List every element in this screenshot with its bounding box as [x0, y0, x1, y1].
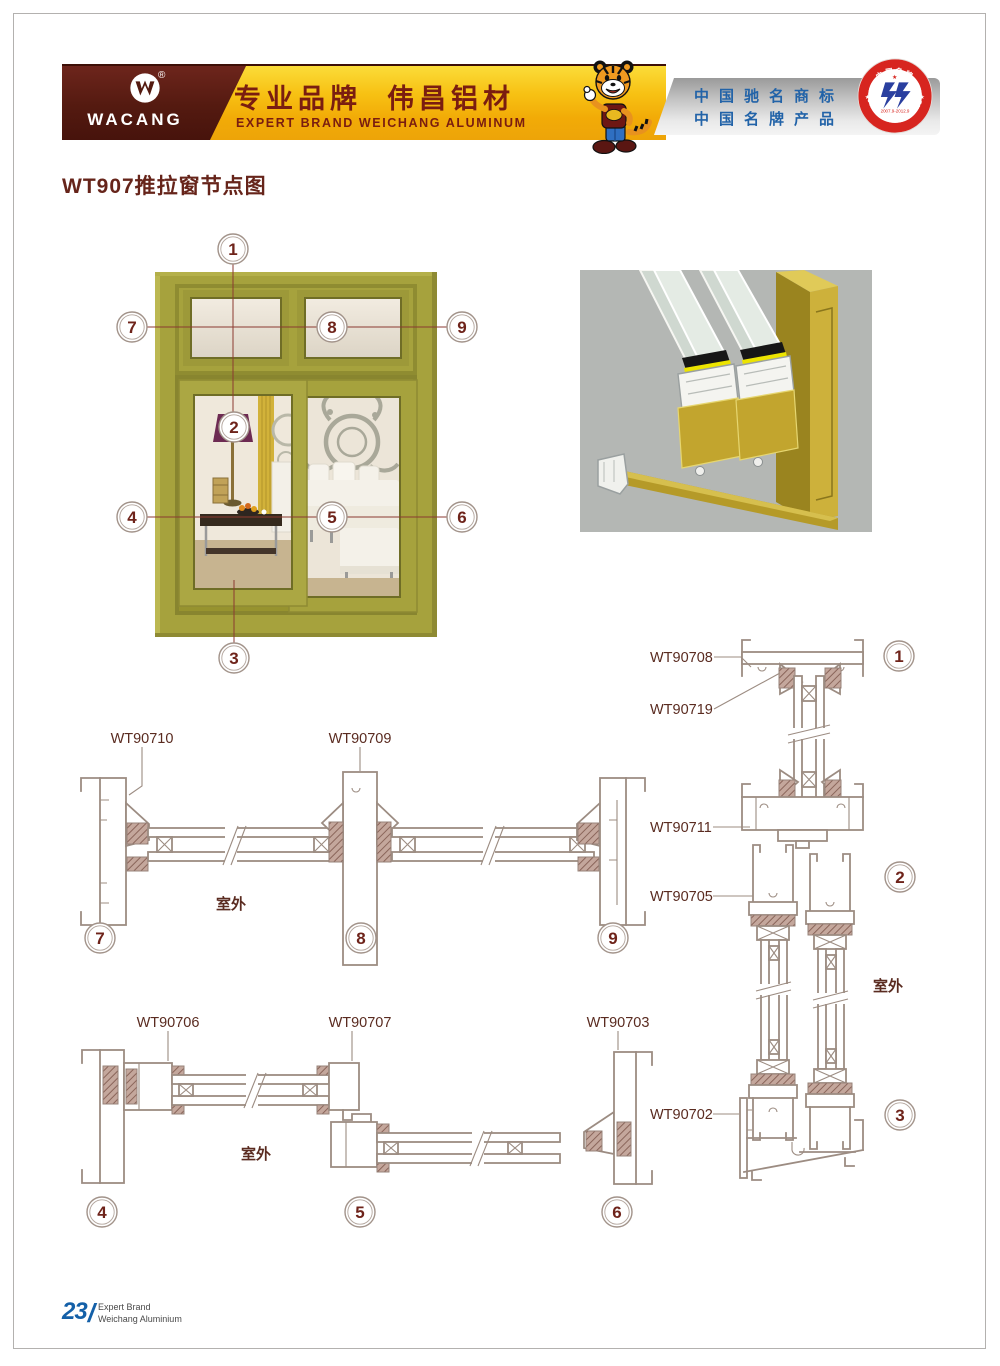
- callout-7: 7: [117, 312, 147, 342]
- footer-brand: Expert Brand Weichang Aluminium: [98, 1298, 182, 1325]
- page-number-slash: /: [88, 1298, 95, 1329]
- callout-8: 8: [317, 312, 347, 342]
- outdoor-label-bottom: 室外: [241, 1145, 271, 1163]
- callout-section-4: 4: [87, 1197, 117, 1227]
- callout-section-7: 7: [85, 923, 115, 953]
- label-wt90711: WT90711: [650, 820, 712, 836]
- label-wt90705: WT90705: [650, 889, 713, 905]
- callout-4: 4: [117, 502, 147, 532]
- svg-text:8: 8: [356, 929, 365, 948]
- callout-1: 1: [218, 234, 248, 264]
- cross-section-drawings: WT90710 WT90709 室外 7 8 9: [55, 610, 975, 1275]
- page-number: 23: [62, 1298, 87, 1326]
- callout-9: 9: [447, 312, 477, 342]
- callout-section-8: 8: [346, 923, 376, 953]
- svg-text:6: 6: [612, 1203, 621, 1222]
- footer-brand-line2: Weichang Aluminium: [98, 1313, 182, 1325]
- honor-line-1: 中国驰名商标: [694, 85, 844, 106]
- callout-section-3: 3: [885, 1100, 915, 1130]
- callout-5: 5: [317, 502, 347, 532]
- honor-line-2: 中国名牌产品: [694, 108, 844, 129]
- tiger-mascot-icon: [567, 54, 657, 154]
- svg-text:8: 8: [327, 318, 336, 337]
- label-wt90703: WT90703: [587, 1015, 650, 1031]
- label-wt90707: WT90707: [329, 1015, 392, 1031]
- window-top-fixed-lights: [175, 284, 417, 375]
- svg-text:5: 5: [355, 1203, 364, 1222]
- svg-text:9: 9: [608, 929, 617, 948]
- svg-text:1: 1: [228, 240, 237, 259]
- callout-2: 2: [219, 412, 249, 442]
- label-wt90719: WT90719: [650, 702, 713, 718]
- label-wt90709: WT90709: [329, 731, 392, 747]
- svg-text:4: 4: [127, 508, 137, 527]
- svg-text:6: 6: [457, 508, 466, 527]
- interior-scene-right: [305, 393, 399, 598]
- callout-section-2: 2: [885, 862, 915, 892]
- svg-text:2: 2: [895, 868, 904, 887]
- svg-text:★: ★: [892, 74, 897, 81]
- svg-text:2007.9-2012.9: 2007.9-2012.9: [881, 109, 910, 114]
- label-wt90710: WT90710: [111, 731, 174, 747]
- callout-section-6: 6: [602, 1197, 632, 1227]
- footer-brand-line1: Expert Brand: [98, 1301, 182, 1313]
- svg-text:9: 9: [457, 318, 466, 337]
- svg-text:1: 1: [894, 647, 903, 666]
- window-sliding-sashes: [175, 375, 417, 615]
- label-wt90708: WT90708: [650, 650, 713, 666]
- svg-text:★: ★: [865, 94, 870, 101]
- china-top-brand-badge: 中国名牌 CHINA TOP BRAND ★ ★ ★ 2007.9-2012.9: [856, 57, 934, 135]
- section-top-horizontal: WT90710 WT90709 室外 7 8 9: [81, 731, 645, 965]
- page-footer: 23 / Expert Brand Weichang Aluminium: [62, 1298, 182, 1329]
- window-illustration: 1 7 8 9 2 4 5 6 3: [0, 0, 500, 695]
- label-wt90702: WT90702: [650, 1107, 713, 1123]
- svg-text:7: 7: [127, 318, 136, 337]
- outdoor-label-right: 室外: [873, 977, 903, 995]
- svg-text:7: 7: [95, 929, 104, 948]
- callout-6: 6: [447, 502, 477, 532]
- label-wt90706: WT90706: [137, 1015, 200, 1031]
- callout-section-5: 5: [345, 1197, 375, 1227]
- svg-text:2: 2: [229, 418, 238, 437]
- section-right-vertical: WT90708 WT90719 WT90711 WT90705 WT90702 …: [650, 640, 915, 1180]
- svg-text:4: 4: [97, 1203, 107, 1222]
- callout-section-9: 9: [598, 923, 628, 953]
- svg-text:3: 3: [895, 1106, 904, 1125]
- svg-text:★: ★: [919, 94, 924, 101]
- catalog-page: ® WACANG 专业品牌 伟昌铝材 EXPERT BRAND WEICHANG…: [0, 0, 1000, 1366]
- svg-text:5: 5: [327, 508, 336, 527]
- callout-section-1: 1: [884, 641, 914, 671]
- profile-3d-render: [580, 270, 872, 537]
- outdoor-label-top: 室外: [216, 895, 246, 913]
- section-bottom-horizontal: WT90706 WT90707 WT90703 室外 4 5 6: [82, 1015, 652, 1227]
